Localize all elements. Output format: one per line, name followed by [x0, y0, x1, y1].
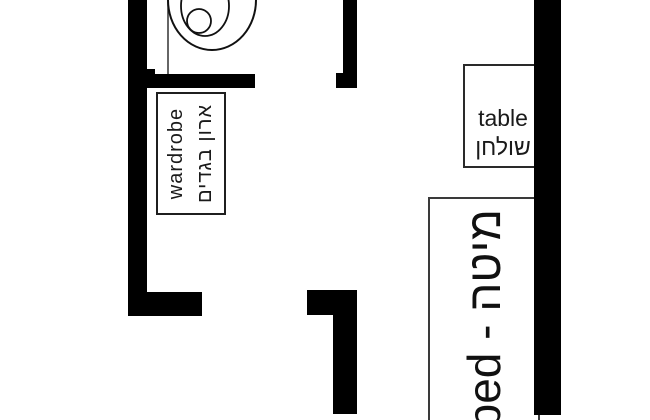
bed-box: מיטה - bed: [428, 197, 540, 420]
floor-plan: wardrobe ארון בגדים table שולחן מיטה - b…: [0, 0, 650, 420]
bed-label-text: מיטה - bed: [457, 209, 511, 420]
wall-right-vertical: [534, 0, 561, 415]
table-label-he: שולחן: [465, 133, 541, 162]
toilet-icon: [147, 0, 262, 80]
wardrobe-box: wardrobe ארון בגדים: [156, 92, 226, 215]
wall-bottom-middle-vertical: [333, 290, 357, 414]
wall-bottom-left: [128, 292, 202, 316]
bed-label: מיטה - bed: [430, 199, 538, 420]
table-label-en: table: [465, 104, 541, 133]
wall-bathroom-bottom: [128, 74, 255, 88]
wardrobe-label-he: ארון בגדים: [191, 94, 220, 213]
wall-top-middle-foot: [336, 73, 357, 88]
wardrobe-label: wardrobe ארון בגדים: [158, 94, 224, 213]
toilet-inner-circle: [187, 9, 211, 33]
wardrobe-label-en: wardrobe: [162, 94, 191, 213]
wall-left-vertical: [128, 0, 147, 316]
table-box: table שולחן: [463, 64, 543, 168]
